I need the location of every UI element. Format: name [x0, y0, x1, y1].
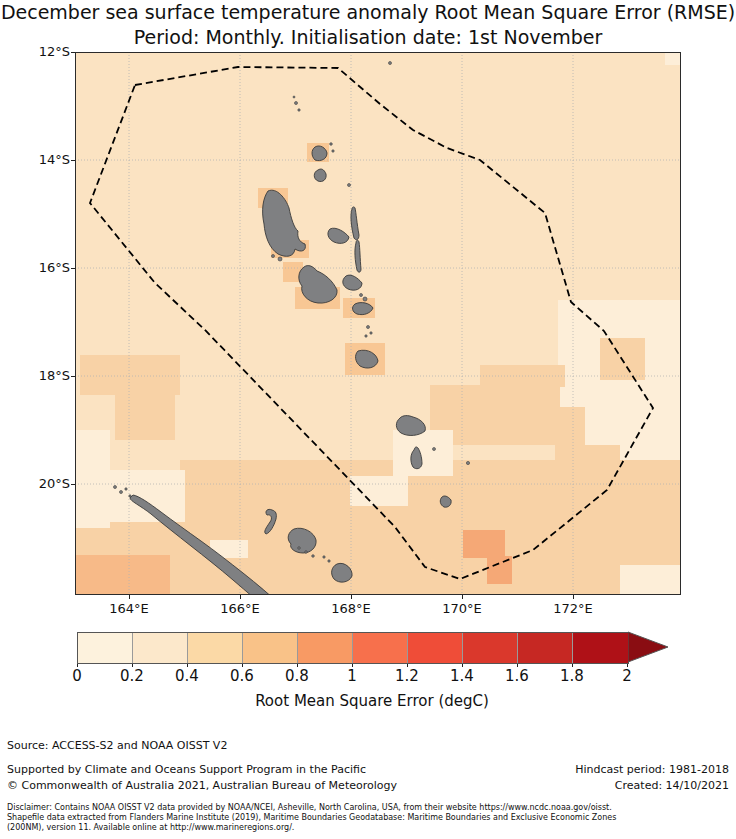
- rmse-patch-west-cluster-a: [80, 355, 180, 395]
- disclaimer-line-1: Disclaimer: Contains NOAA OISST V2 data …: [7, 803, 729, 813]
- y-tick-mark-2: [71, 268, 75, 269]
- island-torres-islet-b: [298, 109, 300, 111]
- y-tick-label-14S: 14°S: [30, 152, 70, 167]
- island-malo-a: [278, 257, 282, 261]
- rmse-patch-orange-bottom-left: [75, 555, 170, 595]
- island-mota-lava-a: [330, 143, 333, 146]
- island-loyalty-islet-b: [328, 560, 330, 562]
- island-hiu-islet: [389, 62, 392, 65]
- colorbar-bin-0-to-0.2: [78, 633, 133, 663]
- x-tick-mark-3: [462, 595, 463, 599]
- rmse-patch-cream-south-erromango-b: [350, 476, 408, 506]
- y-tick-label-12S: 12°S: [30, 44, 70, 59]
- disclaimer-line-3: (200NM), version 11. Available online at…: [7, 823, 729, 833]
- colorbar-label: Root Mean Square Error (degC): [77, 692, 667, 710]
- island-malo-b: [272, 255, 275, 258]
- colorbar-bin-1.8-to-2: [573, 633, 628, 663]
- island-torres-islet-a: [295, 102, 298, 105]
- colorbar-tick-0: 0: [55, 667, 99, 685]
- colorbar-tick-1: 1: [330, 667, 374, 685]
- island-nc-nw-islet-a: [114, 486, 117, 489]
- colorbar-bin-1.2-to-1.4: [408, 633, 463, 663]
- island-aniwa: [433, 448, 436, 451]
- island-vanua-lava: [312, 146, 327, 161]
- island-nc-nw-islet-b: [120, 491, 123, 494]
- colorbar-tick-1.8: 1.8: [550, 667, 594, 685]
- island-shepherd-c: [365, 335, 367, 337]
- island-loyalty-islet-a: [323, 556, 325, 558]
- colorbar-bin-0.8-to-1: [298, 633, 353, 663]
- figure-title-block: December sea surface temperature anomaly…: [0, 0, 736, 52]
- colorbar-tick-2: 2: [605, 667, 649, 685]
- island-lopevi: [363, 297, 367, 301]
- colorbar-tick-0.2: 0.2: [110, 667, 154, 685]
- island-gaua: [314, 169, 326, 181]
- rmse-patch-orange-south-tanna-a: [463, 530, 505, 558]
- x-tick-label-170E: 170°E: [434, 601, 490, 616]
- colorbar-tick-1.6: 1.6: [495, 667, 539, 685]
- figure-subtitle: Period: Monthly. Initialisation date: 1s…: [134, 26, 603, 48]
- rmse-patch-cream-top-right: [665, 52, 681, 65]
- map-svg: [75, 52, 681, 595]
- colorbar: [77, 632, 629, 664]
- rmse-patch-cream-bottom-right: [620, 565, 681, 595]
- island-nc-nw-islet-d: [129, 495, 131, 497]
- disclaimer-block: Disclaimer: Contains NOAA OISST V2 data …: [7, 803, 729, 833]
- island-mota-lava-b: [332, 150, 334, 152]
- x-tick-mark-4: [573, 595, 574, 599]
- colorbar-bin-1.4-to-1.6: [463, 633, 518, 663]
- hindcast-period-text: Hindcast period: 1981-2018: [575, 763, 729, 776]
- colorbar-tick-0.6: 0.6: [220, 667, 264, 685]
- supported-by-text: Supported by Climate and Oceans Support …: [7, 763, 366, 776]
- island-nc-nw-islet-c: [125, 488, 127, 490]
- x-tick-label-168E: 168°E: [323, 601, 379, 616]
- island-torres-islet-c: [293, 96, 295, 98]
- map-plot-area: [75, 52, 681, 595]
- y-tick-mark-0: [71, 52, 75, 53]
- y-tick-label-16S: 16°S: [30, 260, 70, 275]
- island-nc-east-islet-c: [312, 555, 315, 558]
- island-shepherd-b: [370, 332, 372, 334]
- rmse-patch-east-step-a: [555, 407, 585, 495]
- x-tick-mark-2: [351, 595, 352, 599]
- colorbar-tick-0.8: 0.8: [275, 667, 319, 685]
- y-tick-label-20S: 20°S: [30, 476, 70, 491]
- colorbar-extend-arrow-icon: [628, 631, 672, 663]
- island-mere-lava: [348, 184, 351, 187]
- colorbar-bin-1-to-1.2: [353, 633, 408, 663]
- rmse-patch-west-cluster-b: [115, 390, 175, 440]
- x-tick-label-172E: 172°E: [545, 601, 601, 616]
- copyright-text: © Commonwealth of Australia 2021, Austra…: [7, 779, 397, 792]
- created-date-text: Created: 14/10/2021: [615, 779, 729, 792]
- island-nc-east-islet-a: [298, 547, 301, 550]
- x-tick-mark-0: [129, 595, 130, 599]
- island-shepherd-a: [367, 326, 370, 329]
- island-paama: [360, 294, 363, 297]
- colorbar-tick-0.4: 0.4: [165, 667, 209, 685]
- y-tick-mark-3: [71, 376, 75, 377]
- y-tick-mark-4: [71, 484, 75, 485]
- rmse-patch-cream-nw-new-caledonia: [110, 470, 185, 522]
- island-nc-east-islet-b: [305, 551, 308, 554]
- disclaimer-line-2: Shapefile data extracted from Flanders M…: [7, 813, 729, 823]
- rmse-patch-cream-south-erromango: [393, 430, 453, 476]
- colorbar-bin-1.6-to-1.8: [518, 633, 573, 663]
- x-tick-mark-1: [240, 595, 241, 599]
- colorbar-tick-1.2: 1.2: [385, 667, 429, 685]
- y-tick-label-18S: 18°S: [30, 368, 70, 383]
- rmse-patch-cream-west-edge: [75, 430, 110, 528]
- y-tick-mark-1: [71, 160, 75, 161]
- colorbar-bin-0.2-to-0.4: [133, 633, 188, 663]
- island-futuna: [466, 461, 469, 464]
- colorbar-bin-0.4-to-0.6: [188, 633, 243, 663]
- figure-title: December sea surface temperature anomaly…: [1, 1, 735, 23]
- rmse-patch-east-step-b: [585, 445, 620, 495]
- x-tick-label-166E: 166°E: [212, 601, 268, 616]
- colorbar-tick-1.4: 1.4: [440, 667, 484, 685]
- x-tick-label-164E: 164°E: [101, 601, 157, 616]
- source-text: Source: ACCESS-S2 and NOAA OISST V2: [7, 739, 227, 752]
- colorbar-bin-0.6-to-0.8: [243, 633, 298, 663]
